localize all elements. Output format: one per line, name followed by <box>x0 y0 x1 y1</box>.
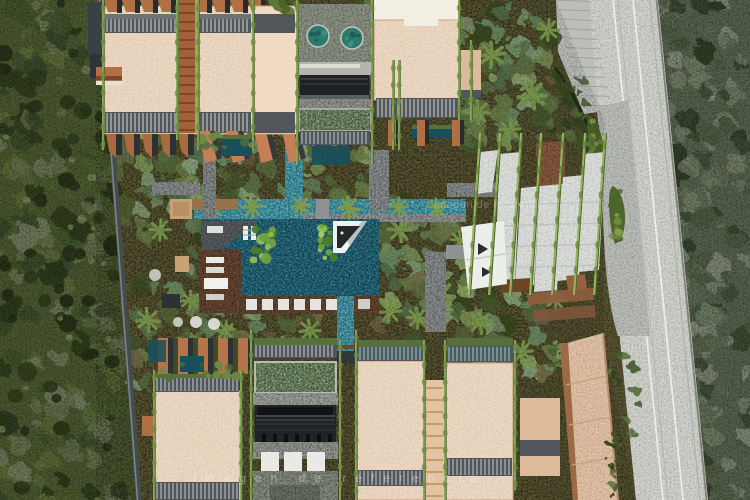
svg-text:imagen de referencia.: imagen de referencia. <box>193 471 498 485</box>
svg-text:imagen de referencia: imagen de referencia <box>434 199 548 211</box>
